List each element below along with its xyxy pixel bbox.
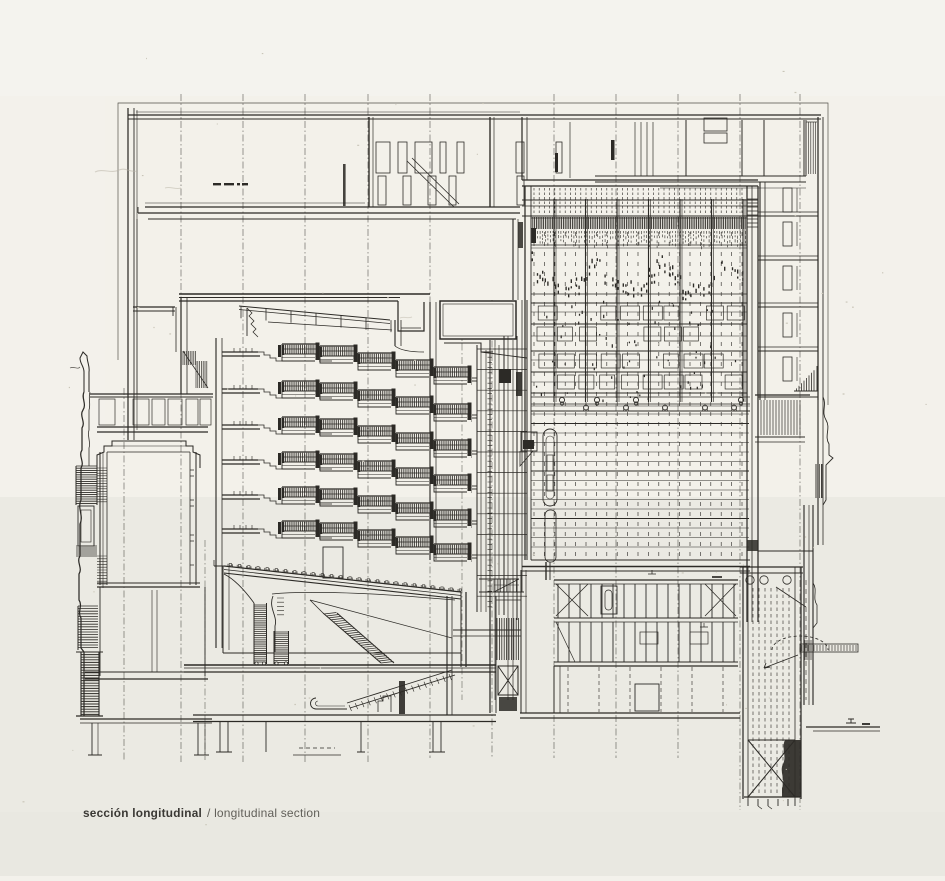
svg-text:/ longitudinal section: / longitudinal section <box>207 806 320 820</box>
svg-text:sección longitudinal: sección longitudinal <box>83 806 202 820</box>
